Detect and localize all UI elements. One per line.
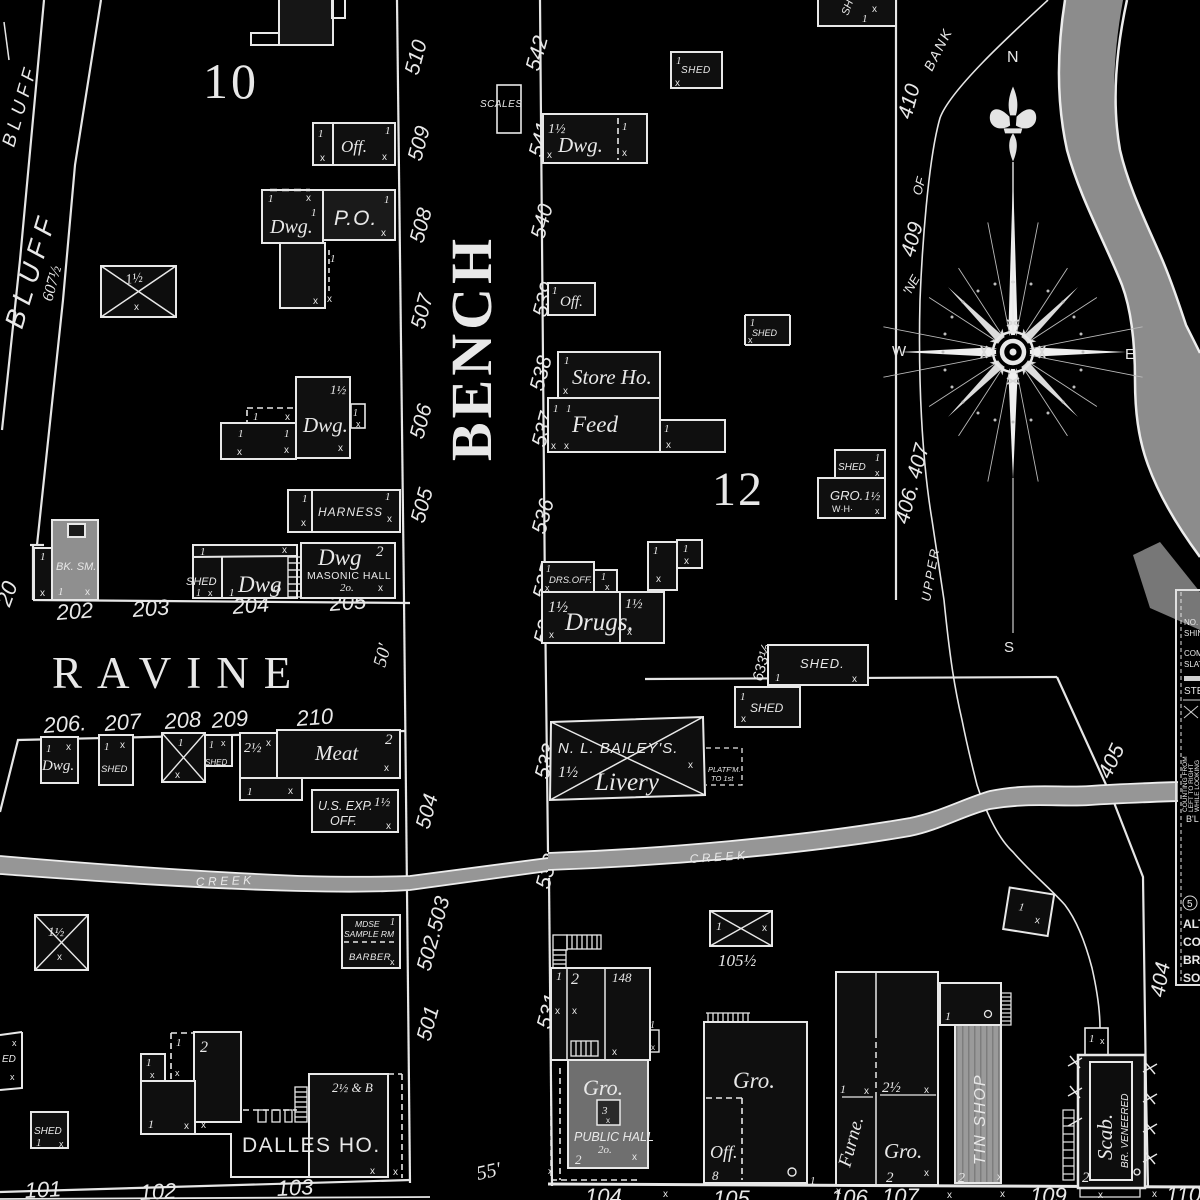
svg-text:x: x [547,150,552,161]
svg-text:x: x [675,78,680,89]
svg-text:x: x [864,1086,869,1097]
svg-text:2: 2 [200,1039,208,1056]
svg-text:BR. VENEERED: BR. VENEERED [1120,1094,1131,1168]
svg-text:209: 209 [210,705,249,733]
svg-text:1: 1 [862,13,868,25]
svg-text:COMP: COMP [1184,649,1200,658]
svg-text:x: x [382,152,387,163]
svg-text:Gro.: Gro. [733,1068,775,1093]
svg-text:SHED: SHED [752,328,778,338]
svg-text:x: x [10,1072,15,1082]
svg-text:PLATF'M.: PLATF'M. [708,765,741,774]
svg-text:1: 1 [622,121,628,133]
svg-text:x: x [663,1189,668,1200]
svg-text:210: 210 [295,703,335,731]
svg-text:x: x [386,821,391,832]
svg-text:206.: 206. [42,710,87,738]
svg-text:Dwg: Dwg [237,572,281,597]
svg-text:x: x [313,296,318,307]
svg-text:x: x [688,760,693,771]
svg-text:WHILE LOOKING: WHILE LOOKING [1194,760,1200,812]
svg-text:x: x [356,419,361,429]
svg-text:x: x [237,447,242,458]
svg-text:x: x [741,714,746,725]
svg-text:202: 202 [55,597,94,625]
svg-text:Meat: Meat [314,741,359,765]
svg-text:DRS.OFF.: DRS.OFF. [549,575,592,586]
svg-text:SHED: SHED [838,462,866,473]
svg-text:5: 5 [1187,899,1193,910]
svg-text:1½: 1½ [864,488,881,503]
svg-text:1: 1 [384,194,390,206]
svg-text:Dwg.: Dwg. [41,758,74,774]
svg-text:8: 8 [712,1168,719,1183]
svg-text:SOL: SOL [1183,971,1200,985]
svg-text:Livery: Livery [594,769,660,796]
svg-text:W: W [892,343,907,360]
svg-text:x: x [555,1006,560,1017]
svg-text:2: 2 [575,1152,582,1167]
svg-text:x: x [306,193,311,204]
svg-text:x: x [12,1038,17,1048]
svg-text:105½: 105½ [718,951,757,970]
svg-text:2: 2 [886,1170,894,1186]
svg-text:CREEK: CREEK [196,873,255,889]
svg-text:1: 1 [556,969,562,983]
svg-text:1: 1 [58,586,64,598]
svg-text:x: x [632,1152,637,1163]
svg-text:10: 10 [203,53,259,109]
svg-text:1: 1 [196,588,201,599]
svg-text:Gro.: Gro. [583,1075,623,1100]
svg-text:1: 1 [775,672,781,684]
svg-text:2½: 2½ [244,741,262,756]
svg-text:SHED: SHED [186,576,217,588]
svg-text:DALLES HO.: DALLES HO. [242,1134,381,1157]
svg-text:1: 1 [330,253,336,265]
svg-text:P.O.: P.O. [334,207,377,230]
svg-text:1½: 1½ [625,597,643,612]
svg-text:x: x [997,1172,1002,1183]
svg-text:x: x [59,1139,64,1149]
svg-text:12: 12 [712,463,764,516]
svg-text:110: 110 [1166,1182,1200,1200]
svg-text:x: x [651,1043,655,1052]
svg-text:x: x [301,518,306,529]
svg-text:x: x [390,957,395,967]
svg-text:x: x [282,545,287,556]
svg-text:MASONIC HALL: MASONIC HALL [307,570,391,582]
svg-text:E: E [1125,346,1135,363]
svg-text:Gro.: Gro. [884,1139,922,1163]
svg-text:x: x [1100,1036,1105,1046]
svg-text:1: 1 [650,1020,655,1031]
svg-text:x: x [872,4,877,15]
svg-text:x: x [57,952,62,963]
svg-text:1: 1 [664,423,670,435]
svg-text:x: x [947,1190,952,1200]
svg-text:x: x [184,1121,189,1132]
svg-text:x: x [338,443,343,454]
svg-text:Dwg.: Dwg. [269,216,313,238]
svg-text:2: 2 [571,971,579,988]
svg-text:1: 1 [875,453,880,464]
svg-text:1: 1 [683,543,689,555]
svg-text:2: 2 [1082,1170,1090,1186]
svg-text:Off.: Off. [560,294,583,310]
svg-text:ALT: ALT [1183,917,1200,931]
svg-text:Off.: Off. [710,1142,738,1162]
svg-text:x: x [656,574,661,585]
svg-text:1: 1 [353,408,358,419]
svg-text:102: 102 [139,1178,177,1200]
svg-text:x: x [285,412,290,423]
svg-text:B'L: B'L [1186,814,1199,824]
svg-text:CON: CON [1183,935,1200,949]
svg-text:x: x [563,386,568,397]
svg-text:1: 1 [253,411,259,423]
svg-text:Store Ho.: Store Ho. [572,365,652,389]
svg-text:x: x [393,1167,398,1178]
svg-text:1: 1 [318,128,324,140]
svg-text:TO 1st: TO 1st [711,774,734,783]
svg-text:SHED: SHED [34,1126,62,1137]
svg-text:2: 2 [376,544,384,560]
svg-text:HARNESS: HARNESS [318,505,383,519]
svg-text:x: x [150,1070,155,1080]
svg-text:1: 1 [716,919,722,933]
svg-text:N. L. BAILEY'S.: N. L. BAILEY'S. [558,740,678,757]
svg-text:2: 2 [385,732,393,748]
svg-text:109: 109 [1030,1183,1067,1200]
svg-text:U.S. EXP.: U.S. EXP. [318,799,373,813]
svg-text:x: x [85,587,90,598]
svg-text:1: 1 [945,1009,951,1023]
svg-text:NO. OF: NO. OF [1184,618,1200,627]
svg-text:1½: 1½ [374,794,391,809]
svg-text:1: 1 [302,493,308,505]
svg-text:1: 1 [200,546,206,558]
svg-text:x: x [175,770,180,781]
svg-text:1: 1 [247,786,253,798]
svg-text:1: 1 [209,740,214,751]
svg-text:x: x [320,153,325,164]
svg-text:2o.: 2o. [598,1144,612,1156]
svg-text:107: 107 [882,1184,919,1200]
svg-text:x: x [572,1006,577,1017]
svg-text:x: x [924,1085,929,1096]
svg-text:104: 104 [585,1184,622,1200]
svg-text:BARBER: BARBER [349,952,391,963]
svg-text:SHINGL: SHINGL [1184,629,1200,638]
svg-text:1½: 1½ [330,382,347,397]
svg-text:x: x [762,923,767,934]
svg-text:x: x [875,506,880,516]
svg-text:1: 1 [176,1037,182,1049]
svg-text:x: x [606,1116,610,1125]
svg-text:203: 203 [131,594,171,622]
svg-text:2½ & B: 2½ & B [332,1080,373,1095]
svg-text:1: 1 [1089,1033,1095,1045]
svg-text:x: x [924,1168,929,1179]
svg-text:x: x [612,1047,617,1058]
svg-text:1: 1 [840,1082,846,1096]
svg-text:1½: 1½ [48,924,65,939]
svg-text:x: x [836,1186,841,1197]
svg-text:1: 1 [146,1057,152,1069]
svg-text:x: x [684,556,689,567]
svg-text:x: x [381,228,386,239]
svg-text:x: x [549,630,554,641]
svg-text:1: 1 [104,741,110,753]
svg-text:2½: 2½ [882,1080,901,1096]
svg-text:1: 1 [229,587,235,599]
svg-text:OFF.: OFF. [330,814,357,828]
svg-text:1: 1 [385,125,391,137]
svg-text:1: 1 [385,491,391,503]
svg-text:x: x [748,335,753,345]
svg-text:x: x [66,742,71,753]
svg-text:S: S [1004,639,1014,656]
svg-text:Off.: Off. [341,137,367,156]
svg-text:105: 105 [713,1186,750,1200]
svg-text:SHED: SHED [205,758,227,767]
svg-text:148: 148 [612,970,632,985]
svg-text:1: 1 [36,1137,42,1149]
svg-text:Drugs.: Drugs. [564,609,634,636]
svg-text:1: 1 [268,193,274,205]
svg-text:1: 1 [553,403,559,415]
svg-text:x: x [288,786,293,797]
svg-text:x: x [666,440,671,451]
svg-text:1: 1 [40,551,46,563]
svg-text:1½: 1½ [124,271,144,288]
svg-text:SHED: SHED [750,701,784,715]
svg-text:x: x [384,763,389,774]
svg-text:1: 1 [148,1117,154,1131]
svg-text:BRO: BRO [1183,953,1200,967]
svg-text:2: 2 [958,1171,965,1186]
svg-text:MDSE: MDSE [355,919,380,929]
svg-text:x: x [605,582,610,592]
svg-text:Dwg: Dwg [317,545,361,570]
svg-text:Feed: Feed [571,412,618,437]
svg-text:1: 1 [552,285,558,297]
svg-text:x: x [175,1068,180,1078]
svg-text:Scab.: Scab. [1093,1114,1117,1160]
svg-text:ED: ED [2,1054,16,1065]
svg-text:N: N [1007,49,1019,66]
svg-text:x: x [327,294,332,305]
svg-text:SHED: SHED [101,764,128,775]
svg-text:1½: 1½ [558,764,578,781]
svg-text:x: x [378,583,383,594]
svg-text:x: x [208,588,213,598]
svg-text:x: x [266,738,271,749]
svg-text:Dwg.: Dwg. [557,133,603,157]
svg-text:x: x [622,148,627,159]
svg-text:STEA: STEA [1184,686,1200,697]
svg-text:1: 1 [178,737,184,749]
svg-text:RAVINE: RAVINE [52,648,306,698]
svg-text:GRO.: GRO. [830,488,863,503]
svg-text:x: x [221,738,226,748]
svg-text:101: 101 [24,1176,62,1200]
svg-text:1: 1 [653,545,659,557]
svg-text:1: 1 [390,917,395,928]
svg-text:TIN SHOP: TIN SHOP [972,1073,989,1165]
svg-text:1: 1 [46,743,52,755]
svg-text:2o.: 2o. [340,582,354,594]
svg-text:SHED: SHED [681,65,711,76]
svg-text:1: 1 [564,355,570,367]
svg-text:x: x [1152,1189,1157,1200]
svg-text:BENCH: BENCH [439,235,504,461]
svg-text:x: x [875,468,880,478]
svg-text:SLATE: SLATE [1184,660,1200,669]
svg-text:SCALES: SCALES [480,99,522,110]
svg-text:1: 1 [284,428,290,440]
svg-text:207: 207 [103,708,143,736]
svg-text:x: x [627,627,632,638]
svg-text:SHED.: SHED. [800,656,845,671]
svg-text:x: x [564,441,569,452]
svg-text:1: 1 [238,428,244,440]
svg-text:x: x [370,1166,375,1177]
svg-text:1: 1 [810,1175,816,1187]
svg-text:x: x [387,514,392,525]
svg-text:x: x [852,674,857,685]
svg-text:Dwg.: Dwg. [302,413,348,437]
svg-text:208: 208 [163,706,203,734]
svg-text:x: x [201,1120,206,1131]
svg-text:x: x [1000,1189,1005,1200]
svg-text:PUBLIC HALL: PUBLIC HALL [574,1130,654,1144]
svg-text:SAMPLE RM: SAMPLE RM [344,929,395,939]
svg-text:x: x [40,588,45,599]
svg-text:BK. SM.: BK. SM. [56,561,96,573]
svg-text:x: x [548,1166,553,1176]
svg-text:x: x [284,445,289,456]
svg-text:x: x [1098,1190,1103,1200]
svg-text:W·H·: W·H· [832,504,853,514]
svg-text:x: x [551,441,556,452]
svg-text:1: 1 [546,564,551,575]
svg-text:1: 1 [566,403,572,415]
svg-text:x: x [134,302,139,313]
svg-text:1: 1 [740,691,746,703]
svg-text:x: x [120,740,125,751]
